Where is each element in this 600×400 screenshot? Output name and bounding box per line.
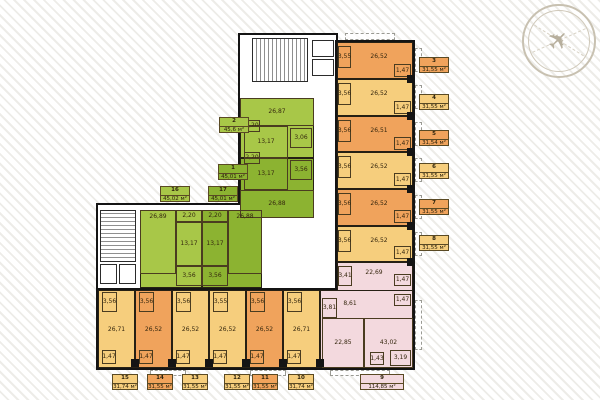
room-area-value: 1,47	[139, 350, 153, 364]
room-area-value: 1,47	[250, 350, 264, 364]
unit-area: 45,01 м²	[209, 196, 237, 205]
unit-number: 2	[220, 118, 248, 127]
wall-pier	[242, 359, 250, 367]
wall-pier	[407, 112, 415, 120]
wall-pier	[279, 359, 287, 367]
room-area-value: 2,20	[202, 210, 228, 222]
unit-number: 5	[420, 131, 448, 140]
unit-number: 11	[253, 375, 277, 384]
room-area-value: 13,17	[176, 222, 202, 266]
room-area-value: 26,52	[350, 46, 408, 68]
balcony	[345, 33, 395, 40]
unit-label-15[interactable]: 1531,74 м²	[112, 374, 138, 390]
elevator-shaft	[119, 264, 136, 284]
unit-number: 12	[225, 375, 249, 384]
room-area-value: 3,55	[213, 292, 228, 312]
room-area-value: 26,52	[174, 322, 207, 338]
room-area-value: 3,56	[176, 266, 202, 286]
unit-number: 13	[183, 375, 207, 384]
room-area-value: 3,56	[202, 266, 228, 286]
unit-area: 45,02 м²	[161, 196, 189, 205]
unit-number: 7	[420, 200, 448, 209]
staircase	[252, 38, 308, 82]
unit-area: 114,85 м²	[361, 384, 403, 393]
unit-area: 31,74 м²	[113, 384, 137, 393]
room-area-value: 26,52	[350, 156, 408, 178]
elevator-shaft	[312, 40, 334, 57]
unit-area: 45,6 м²	[220, 127, 248, 136]
unit-number: 1	[219, 165, 247, 174]
room-area-value: 3,56	[250, 292, 265, 312]
unit-area: 31,55 м²	[420, 104, 448, 113]
unit-label-13[interactable]: 1331,55 м²	[182, 374, 208, 390]
unit-number: 14	[148, 375, 172, 384]
unit-label-1[interactable]: 145,01 м²	[218, 164, 248, 180]
room-area-value: 1,47	[176, 350, 190, 364]
unit-label-6[interactable]: 631,55 м²	[419, 163, 449, 179]
unit-area: 31,55 м²	[420, 209, 448, 218]
unit-area: 31,55 м²	[420, 245, 448, 254]
room-area-value: 22,69	[352, 266, 396, 280]
unit-number: 16	[161, 187, 189, 196]
room-area-value: 26,71	[100, 322, 133, 338]
wall-pier	[407, 148, 415, 156]
wall-pier	[168, 359, 176, 367]
unit-label-17[interactable]: 1745,01 м²	[208, 186, 238, 202]
unit-area: 31,55 м²	[420, 67, 448, 76]
unit-area: 31,55 м²	[420, 173, 448, 182]
unit-label-3[interactable]: 331,55 м²	[419, 57, 449, 73]
room-area-value: 1,47	[102, 350, 116, 364]
wall-pier	[131, 359, 139, 367]
room-area-value: 13,17	[202, 222, 228, 266]
unit-label-8[interactable]: 831,55 м²	[419, 235, 449, 251]
unit-number: 8	[420, 236, 448, 245]
unit-number: 3	[420, 58, 448, 67]
unit-label-14[interactable]: 1431,55 м²	[147, 374, 173, 390]
room-area-value: 3,19	[390, 350, 411, 366]
unit-number: 4	[420, 95, 448, 104]
unit-number: 17	[209, 187, 237, 196]
room-area-value: 3,56	[139, 292, 154, 312]
room-area-value: 26,52	[248, 322, 281, 338]
wall-pier	[407, 258, 415, 266]
elevator-shaft	[100, 264, 117, 284]
unit-label-7[interactable]: 731,55 м²	[419, 199, 449, 215]
room-area-value: 26,51	[350, 120, 408, 142]
wall-pier	[316, 359, 324, 367]
room-area-value: 26,52	[211, 322, 244, 338]
room-area-value: 8,61	[339, 298, 361, 310]
unit-label-16[interactable]: 1645,02 м²	[160, 186, 190, 202]
room-area-value: 26,71	[285, 322, 318, 338]
room-area-value: 26,52	[137, 322, 170, 338]
unit-label-10[interactable]: 1031,74 м²	[288, 374, 314, 390]
room-area-value: 3,06	[290, 128, 312, 148]
compass-icon: ✈	[522, 4, 596, 78]
room-area-value: 26,88	[228, 210, 262, 274]
unit-label-2[interactable]: 245,6 м²	[219, 117, 249, 133]
unit-number: 6	[420, 164, 448, 173]
room-area-value: 3,56	[290, 160, 312, 180]
unit-area: 31,55 м²	[148, 384, 172, 393]
unit-number: 9	[361, 375, 403, 384]
staircase	[100, 210, 136, 262]
room-area-value: 1,47	[213, 350, 227, 364]
unit-label-4[interactable]: 431,55 м²	[419, 94, 449, 110]
room-area-value: 1,47	[394, 274, 411, 286]
room-area-value: 22,85	[322, 318, 364, 368]
balcony	[415, 300, 422, 350]
room-area-value: 3,56	[176, 292, 191, 312]
room-area-value: 3,56	[102, 292, 117, 312]
room-area-value: 26,52	[350, 83, 408, 105]
room-area-value: 1,47	[287, 350, 301, 364]
unit-number: 10	[289, 375, 313, 384]
unit-area: 45,01 м²	[219, 174, 247, 183]
unit-number: 15	[113, 375, 137, 384]
unit-label-5[interactable]: 531,54 м²	[419, 130, 449, 146]
room-area-value: 1,43	[370, 352, 384, 365]
unit-area: 31,55 м²	[253, 384, 277, 393]
wall-pier	[407, 222, 415, 230]
unit-label-9[interactable]: 9114,85 м²	[360, 374, 404, 390]
room-area-value: 26,52	[350, 193, 408, 215]
room-area-value: 26,52	[350, 230, 408, 252]
wall-pier	[407, 75, 415, 83]
unit-area: 31,55 м²	[183, 384, 207, 393]
unit-area: 31,74 м²	[289, 384, 313, 393]
floor-plan-canvas: 3,551,4726,523,561,4726,523,561,4726,513…	[0, 0, 600, 400]
wall-pier	[205, 359, 213, 367]
unit-area: 31,55 м²	[225, 384, 249, 393]
elevator-shaft	[312, 59, 334, 76]
room-area-value: 2,20	[176, 210, 202, 222]
room-area-value: 3,81	[322, 298, 337, 318]
room-area-value: 3,41	[338, 266, 352, 286]
unit-label-11[interactable]: 1131,55 м²	[252, 374, 278, 390]
room-area-value: 13,17	[244, 158, 288, 190]
room-area-value: 3,56	[287, 292, 302, 312]
room-area-value: 1,47	[394, 294, 411, 306]
wall-pier	[407, 185, 415, 193]
unit-label-12[interactable]: 1231,55 м²	[224, 374, 250, 390]
unit-area: 31,54 м²	[420, 140, 448, 149]
room-area-value: 26,89	[140, 210, 176, 274]
